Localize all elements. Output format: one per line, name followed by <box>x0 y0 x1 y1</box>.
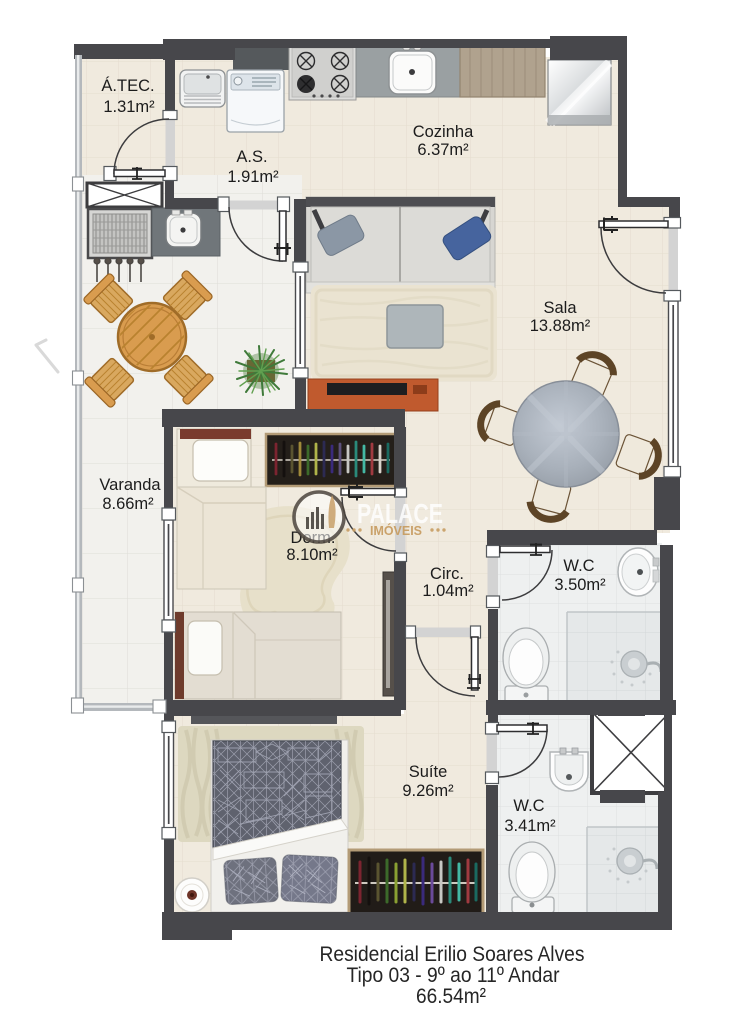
svg-text:13.88m²: 13.88m² <box>530 317 591 335</box>
svg-text:9.26m²: 9.26m² <box>402 782 454 800</box>
svg-text:Cozinha: Cozinha <box>413 123 474 141</box>
svg-text:3.50m²: 3.50m² <box>554 576 606 594</box>
svg-text:Varanda: Varanda <box>99 476 161 494</box>
svg-text:6.37m²: 6.37m² <box>417 141 469 159</box>
svg-text:8.10m²: 8.10m² <box>286 546 338 564</box>
svg-text:IMÓVEIS: IMÓVEIS <box>370 523 422 538</box>
svg-text:W.C: W.C <box>513 797 544 815</box>
svg-text:Sala: Sala <box>543 299 577 317</box>
svg-text:1.04m²: 1.04m² <box>422 582 474 600</box>
svg-text:A.S.: A.S. <box>236 148 267 166</box>
svg-text:3.41m²: 3.41m² <box>504 817 556 835</box>
svg-text:1.91m²: 1.91m² <box>227 168 279 186</box>
svg-text:1.31m²: 1.31m² <box>103 98 155 116</box>
svg-text:W.C: W.C <box>563 557 594 575</box>
svg-text:66.54m²: 66.54m² <box>416 984 486 1008</box>
svg-text:Circ.: Circ. <box>430 565 464 583</box>
svg-text:Á.TEC.: Á.TEC. <box>101 76 154 95</box>
svg-text:Suíte: Suíte <box>409 763 448 781</box>
svg-text:8.66m²: 8.66m² <box>102 495 154 513</box>
